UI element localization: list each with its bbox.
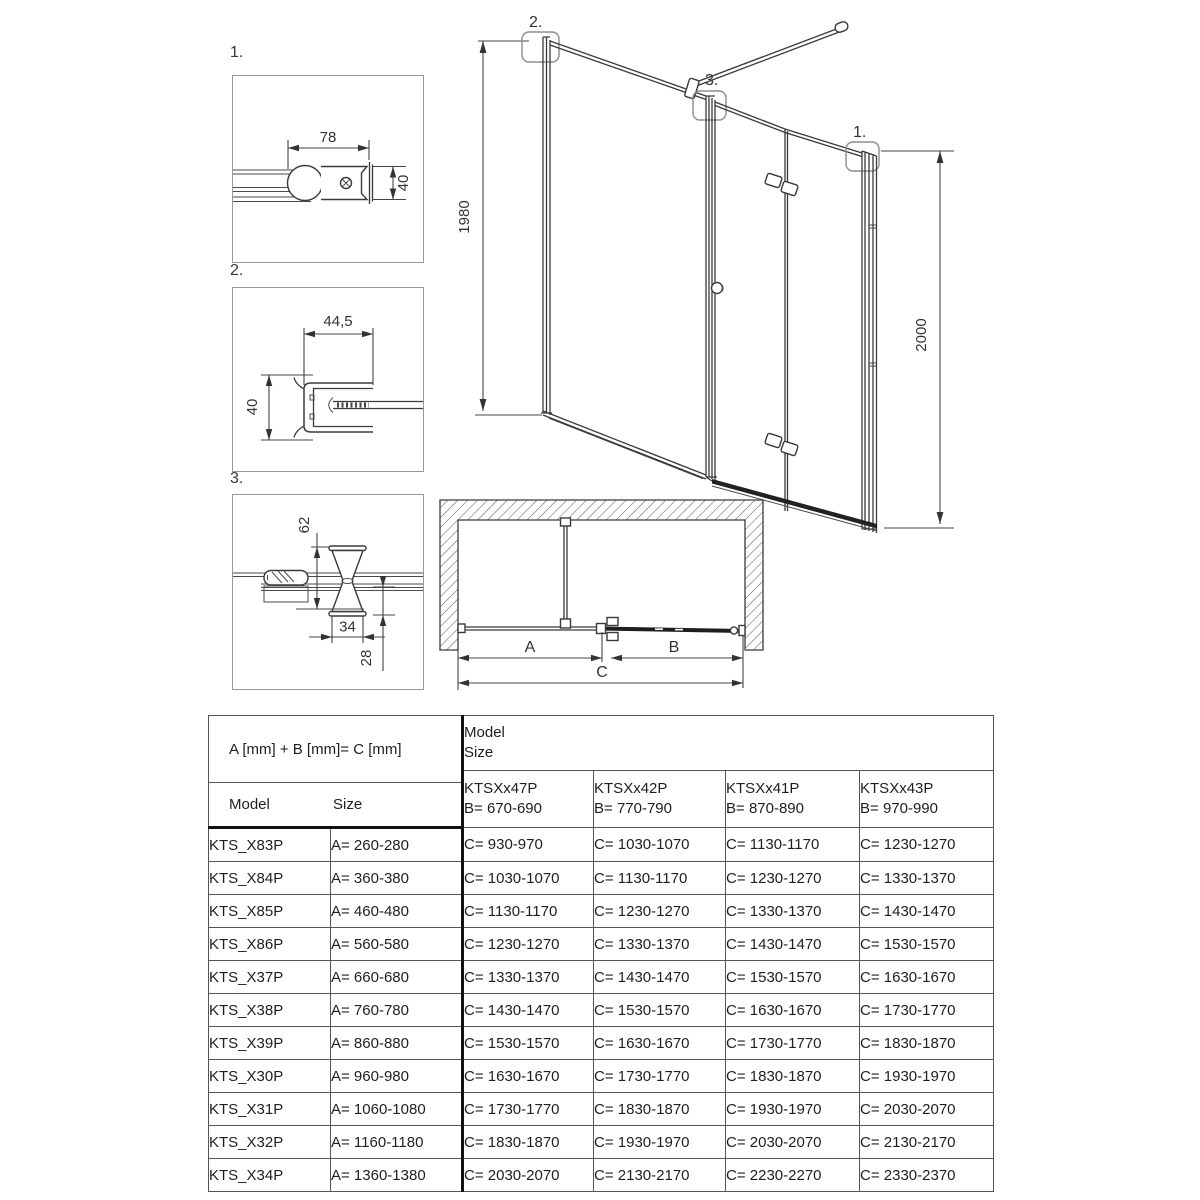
size-table: A [mm] + B [mm]= C [mm] Model Size Model… xyxy=(208,715,994,1192)
size-c: C= 1330-1370 xyxy=(860,862,994,895)
model-name: KTS_X34P xyxy=(209,1159,331,1192)
dim-c: C xyxy=(458,664,743,686)
size-c: C= 1630-1670 xyxy=(463,1060,594,1093)
size-a: A= 1160-1180 xyxy=(331,1126,463,1159)
size-a: A= 560-580 xyxy=(331,928,463,961)
size-c: C= 1530-1570 xyxy=(726,961,860,994)
size-c: C= 2030-2070 xyxy=(726,1126,860,1159)
table-row: KTS_X31P A= 1060-1080 C= 1730-1770 C= 18… xyxy=(209,1093,994,1126)
wall-profile-plan xyxy=(458,624,465,633)
size-c: C= 1830-1870 xyxy=(594,1093,726,1126)
door-highlight-2 xyxy=(675,629,683,631)
size-c: C= 1030-1070 xyxy=(594,828,726,862)
dim-height-2000: 2000 xyxy=(881,151,954,528)
size-a: A= 860-880 xyxy=(331,1027,463,1060)
size-c: C= 1630-1670 xyxy=(726,994,860,1027)
right-profile xyxy=(862,151,877,533)
detail-2-label: 2. xyxy=(230,262,243,280)
dim-445-label: 44,5 xyxy=(323,313,352,330)
size-c: C= 1530-1570 xyxy=(860,928,994,961)
column-header-ktsx43p: KTSXx43PB= 970-990 xyxy=(860,771,994,828)
support-bar-plan xyxy=(561,518,571,628)
size-c: C= 1630-1670 xyxy=(594,1027,726,1060)
callout-1-label: 1. xyxy=(853,124,866,141)
table-row: KTS_X30P A= 960-980 C= 1630-1670 C= 1730… xyxy=(209,1060,994,1093)
table-row: KTS_X32P A= 1160-1180 C= 1830-1870 C= 19… xyxy=(209,1126,994,1159)
table-row: KTS_X37P A= 660-680 C= 1330-1370 C= 1430… xyxy=(209,961,994,994)
dim-1980-label: 1980 xyxy=(456,200,473,233)
dim-28-label: 28 xyxy=(358,650,375,667)
size-c: C= 2330-2370 xyxy=(860,1159,994,1192)
door-roller xyxy=(730,627,737,634)
dim-40-label: 40 xyxy=(395,175,412,192)
door-end-profile xyxy=(597,624,606,634)
size-a: A= 260-280 xyxy=(331,828,463,862)
model-name: KTS_X84P xyxy=(209,862,331,895)
dim-78-label: 78 xyxy=(320,129,337,146)
size-c: C= 1830-1870 xyxy=(463,1126,594,1159)
size-c: C= 1730-1770 xyxy=(463,1093,594,1126)
detail-3-box: 62 34 28 xyxy=(232,494,424,690)
model-name: KTS_X37P xyxy=(209,961,331,994)
size-a: A= 1360-1380 xyxy=(331,1159,463,1192)
elevation-drawing: 1980 2. 3. 1. 2000 xyxy=(425,5,975,545)
column-header-ktsx42p: KTSXx42PB= 770-790 xyxy=(594,771,726,828)
size-c: C= 1230-1270 xyxy=(463,928,594,961)
size-c: C= 1730-1770 xyxy=(860,994,994,1027)
size-c: C= 1530-1570 xyxy=(463,1027,594,1060)
model-name: KTS_X83P xyxy=(209,828,331,862)
size-a: A= 760-780 xyxy=(331,994,463,1027)
model-name: KTS_X32P xyxy=(209,1126,331,1159)
table-row: KTS_X34P A= 1360-1380 C= 2030-2070 C= 21… xyxy=(209,1159,994,1192)
door-knob xyxy=(712,283,724,294)
dim-width: 44,5 xyxy=(304,313,373,385)
dim-c-label: C xyxy=(596,664,608,681)
door-highlight-1 xyxy=(655,628,663,630)
support-bar-cap xyxy=(834,21,849,34)
size-c: C= 1830-1870 xyxy=(860,1027,994,1060)
size-c: C= 1930-1970 xyxy=(726,1093,860,1126)
column-header-ktsx47p: KTSXx47PB= 670-690 xyxy=(463,771,594,828)
size-c: C= 2030-2070 xyxy=(463,1159,594,1192)
model-name: KTS_X85P xyxy=(209,895,331,928)
size-c: C= 2030-2070 xyxy=(860,1093,994,1126)
size-c: C= 1130-1170 xyxy=(726,828,860,862)
dim-b-label: B xyxy=(669,639,680,656)
size-c: C= 1330-1370 xyxy=(594,928,726,961)
callout-2-box xyxy=(522,32,559,62)
size-c: C= 1930-1970 xyxy=(594,1126,726,1159)
hinge-clamp-top xyxy=(607,618,618,626)
table-row: KTS_X83P A= 260-280 C= 930-970 C= 1030-1… xyxy=(209,828,994,862)
table-row: KTS_X38P A= 760-780 C= 1430-1470 C= 1530… xyxy=(209,994,994,1027)
size-c: C= 1930-1970 xyxy=(860,1060,994,1093)
plan-view-drawing: A B C xyxy=(428,490,773,705)
callout-2-label: 2. xyxy=(529,14,542,31)
size-a: A= 960-980 xyxy=(331,1060,463,1093)
size-c: C= 930-970 xyxy=(463,828,594,862)
dim-a-label: A xyxy=(525,639,536,656)
screw-icon xyxy=(341,178,352,189)
dim-2000-label: 2000 xyxy=(913,318,930,351)
detail-2-box: 44,5 40 xyxy=(232,287,424,472)
model-name: KTS_X30P xyxy=(209,1060,331,1093)
detail-1-label: 1. xyxy=(230,44,243,62)
dim-a: A xyxy=(458,639,602,661)
dim-width: 78 xyxy=(288,129,369,169)
fixed-panel-bottom-rail xyxy=(543,411,706,479)
dim-34-label: 34 xyxy=(339,619,356,636)
detail-1-hinge-section-drawing: 78 40 xyxy=(233,76,423,262)
size-c: C= 1330-1370 xyxy=(726,895,860,928)
shower-screen-spec-sheet: { "details": [ {"label": "1.", "dim_widt… xyxy=(0,0,1200,1200)
fixed-panel-plan xyxy=(458,627,598,630)
dim-40-label: 40 xyxy=(244,399,261,416)
formula-cell: A [mm] + B [mm]= C [mm] Model Size xyxy=(209,716,463,828)
size-c: C= 1830-1870 xyxy=(726,1060,860,1093)
size-c: C= 1230-1270 xyxy=(860,828,994,862)
fixed-panel-top-edge xyxy=(550,41,706,100)
table-row: KTS_X86P A= 560-580 C= 1230-1270 C= 1330… xyxy=(209,928,994,961)
table-row: KTS_X85P A= 460-480 C= 1130-1170 C= 1230… xyxy=(209,895,994,928)
group-header-line1: Model xyxy=(464,723,993,743)
model-name: KTS_X39P xyxy=(209,1027,331,1060)
column-header-ktsx41p: KTSXx41PB= 870-890 xyxy=(726,771,860,828)
table-row: KTS_X39P A= 860-880 C= 1530-1570 C= 1630… xyxy=(209,1027,994,1060)
detail-3-label: 3. xyxy=(230,470,243,488)
glass-edge xyxy=(370,162,373,204)
detail-1-box: 78 40 xyxy=(232,75,424,263)
size-c: C= 2130-2170 xyxy=(860,1126,994,1159)
size-a: A= 1060-1080 xyxy=(331,1093,463,1126)
dim-height: 40 xyxy=(372,167,412,200)
size-c: C= 1530-1570 xyxy=(594,994,726,1027)
detail-3-knob-section-drawing: 62 34 28 xyxy=(233,495,423,689)
model-name: KTS_X31P xyxy=(209,1093,331,1126)
hinge-clamp-bottom xyxy=(607,633,618,641)
glass-panes xyxy=(233,573,423,591)
size-c: C= 1230-1270 xyxy=(726,862,860,895)
size-c: C= 1130-1170 xyxy=(463,895,594,928)
size-c: C= 1630-1670 xyxy=(860,961,994,994)
size-c: C= 1730-1770 xyxy=(594,1060,726,1093)
size-c: C= 1230-1270 xyxy=(594,895,726,928)
size-column-header: Size xyxy=(331,796,362,813)
size-c: C= 2230-2270 xyxy=(726,1159,860,1192)
size-c: C= 1430-1470 xyxy=(860,895,994,928)
hinge-knuckle xyxy=(288,166,323,201)
model-name: KTS_X38P xyxy=(209,994,331,1027)
size-c: C= 1730-1770 xyxy=(726,1027,860,1060)
size-a: A= 660-680 xyxy=(331,961,463,994)
door-wall-cap xyxy=(739,626,745,636)
size-c: C= 1430-1470 xyxy=(726,928,860,961)
model-column-header: Model xyxy=(209,796,331,813)
size-c: C= 1330-1370 xyxy=(463,961,594,994)
glass-pane xyxy=(329,398,423,413)
size-c: C= 1130-1170 xyxy=(594,862,726,895)
size-c: C= 1430-1470 xyxy=(463,994,594,1027)
dim-62-label: 62 xyxy=(296,517,313,534)
model-size-group-header: Model Size xyxy=(463,716,994,771)
group-header-line2: Size xyxy=(464,743,993,763)
size-a: A= 360-380 xyxy=(331,862,463,895)
model-name: KTS_X86P xyxy=(209,928,331,961)
formula-label: A [mm] + B [mm]= C [mm] xyxy=(209,716,461,783)
dim-b: B xyxy=(611,639,743,661)
size-c: C= 1030-1070 xyxy=(463,862,594,895)
left-wall-profile xyxy=(541,37,552,415)
door-panel-plan xyxy=(598,627,743,634)
table-header-row-1: A [mm] + B [mm]= C [mm] Model Size Model… xyxy=(209,716,994,771)
dim-width: 34 xyxy=(309,616,385,643)
knob xyxy=(329,546,366,616)
hinge-bottom xyxy=(765,433,799,456)
latch xyxy=(264,571,308,603)
extension-lines xyxy=(458,632,743,690)
dim-height: 40 xyxy=(244,375,313,440)
door-top-edge xyxy=(715,102,862,157)
dim-height-1980: 1980 xyxy=(456,41,542,415)
table-row: KTS_X84P A= 360-380 C= 1030-1070 C= 1130… xyxy=(209,862,994,895)
size-c: C= 1430-1470 xyxy=(594,961,726,994)
model-size-subheader: Model Size xyxy=(209,783,461,826)
callout-3-label: 3. xyxy=(705,72,718,89)
size-a: A= 460-480 xyxy=(331,895,463,928)
size-c: C= 2130-2170 xyxy=(594,1159,726,1192)
hinge-top xyxy=(765,173,799,196)
detail-2-wall-profile-drawing: 44,5 40 xyxy=(233,288,423,471)
